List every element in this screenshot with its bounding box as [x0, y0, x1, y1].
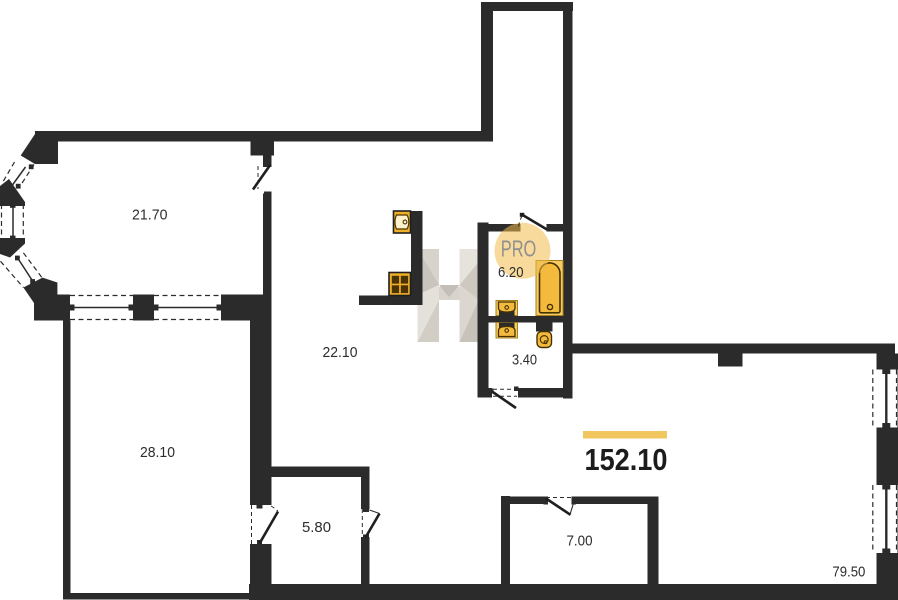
svg-text:28.10: 28.10 [140, 445, 175, 461]
svg-text:7.00: 7.00 [567, 534, 593, 550]
svg-text:3.40: 3.40 [512, 353, 537, 369]
svg-text:79.50: 79.50 [832, 565, 865, 581]
svg-text:PRO: PRO [501, 236, 537, 262]
svg-text:6.20: 6.20 [498, 265, 524, 281]
svg-text:5.80: 5.80 [302, 520, 331, 536]
svg-text:21.70: 21.70 [132, 208, 168, 224]
svg-text:152.10: 152.10 [585, 442, 668, 477]
svg-text:22.10: 22.10 [323, 345, 358, 361]
